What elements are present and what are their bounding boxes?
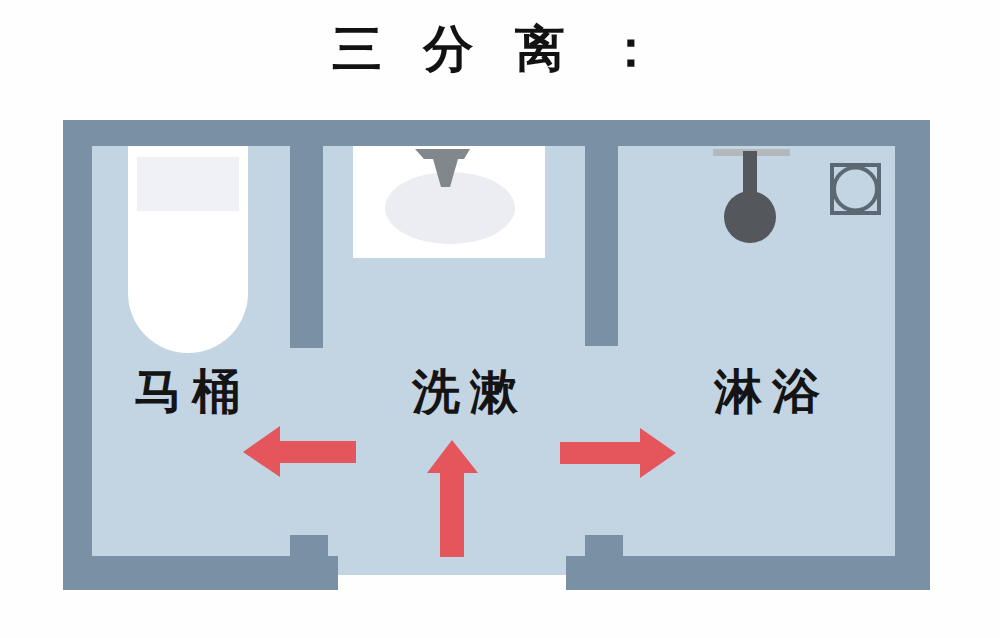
room-label-toilet: 马桶 — [134, 360, 250, 424]
page-title: 三 分 离 ： — [0, 16, 1000, 83]
sink-counter — [353, 146, 545, 258]
door-jamb-left — [290, 535, 328, 557]
door-jamb-right — [585, 535, 623, 557]
toilet-tank — [137, 157, 239, 211]
divider-wall-left — [290, 146, 323, 348]
doorway-opening — [338, 575, 566, 590]
doorway-floor — [338, 556, 566, 575]
sink-basin — [385, 172, 515, 244]
toilet-icon — [128, 146, 248, 353]
room-label-shower: 淋浴 — [714, 360, 830, 424]
shower-head-icon — [724, 191, 776, 243]
room-label-washing: 洗漱 — [412, 360, 528, 424]
bathroom-separation-diagram: 三 分 离 ： 马桶 洗漱 淋浴 — [0, 0, 1000, 638]
divider-wall-right — [585, 146, 618, 346]
